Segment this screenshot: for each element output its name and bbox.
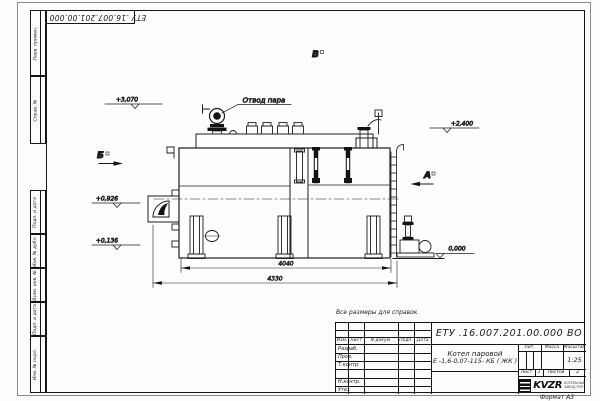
view-label-v: В xyxy=(312,50,324,60)
lit-label: Лит. xyxy=(518,344,541,351)
lifting-lug xyxy=(167,147,174,158)
elevation-0000: 0,000 xyxy=(436,246,474,259)
elevation-0136: +0,136 xyxy=(92,238,140,250)
boiler-body xyxy=(179,134,390,258)
col-ndoc: N докум. xyxy=(364,337,398,344)
format-label: Формат А3 xyxy=(497,394,600,401)
elevation-value: +0,926 xyxy=(96,196,118,203)
kvzr-logo-subtitle: КОТЕЛЬНЫЙ ЗАВОД РЭП xyxy=(564,381,585,389)
steam-outlet-callout: Отвод пара xyxy=(222,97,291,114)
dimension-4040: 4040 xyxy=(181,259,391,273)
product-name: Котел паровой Е -1,6-0,07-115- КБ ( ЖК ) xyxy=(432,344,518,371)
col-podp: Подп. xyxy=(398,337,414,344)
top-hatches xyxy=(247,123,304,134)
view-label-b: Б xyxy=(97,151,123,166)
manhole xyxy=(204,231,220,242)
kvzr-logo: KVZR КОТЕЛЬНЫЙ ЗАВОД РЭП xyxy=(519,377,585,393)
sheet-value: 1 xyxy=(535,369,543,376)
reference-note: Все размеры для справок xyxy=(336,309,476,316)
product-line1: Котел паровой xyxy=(448,350,503,358)
elevation-value: +0,136 xyxy=(96,238,118,245)
elevation-value: 0,000 xyxy=(448,246,465,253)
row-prov: Пров. xyxy=(336,353,366,361)
scale-label: Масштаб xyxy=(563,344,586,351)
sheets-value: 2 xyxy=(569,369,586,376)
elevation-value: +2,400 xyxy=(451,121,473,128)
doc-number: ЕТУ .16.007.201.00.000 ВО xyxy=(432,323,586,344)
sheets-label: Листов xyxy=(543,369,569,376)
row-tkontr: Т.контр. xyxy=(336,361,366,369)
mass-label: Масса xyxy=(541,344,563,351)
burner xyxy=(148,190,179,247)
row-nkontr: Н.контр. xyxy=(336,378,366,386)
flame-icon xyxy=(153,201,169,217)
col-izm: Изм. xyxy=(336,337,348,344)
sheet-label: Лист xyxy=(518,369,535,376)
feed-pump xyxy=(393,216,444,259)
title-block: ЕТУ .16.007.201.00.000 ВО Изм. Лист N до… xyxy=(335,322,585,393)
safety-valve xyxy=(358,110,383,148)
row-razrab: Разраб. xyxy=(336,344,366,353)
col-list: Лист xyxy=(348,337,364,344)
elevation-value: +3,070 xyxy=(116,97,138,104)
col-data: Дата xyxy=(414,337,431,344)
kvzr-logo-icon xyxy=(519,379,531,392)
elevation-2400: +2,400 xyxy=(430,121,479,133)
level-gauges xyxy=(295,147,353,183)
dome-fitting xyxy=(230,131,237,134)
scale-value: 1:25 xyxy=(563,351,586,369)
support-legs xyxy=(188,216,382,259)
view-label-a: А xyxy=(411,171,436,186)
elevation-0926: +0,926 xyxy=(92,196,140,208)
svg-text:В: В xyxy=(312,50,319,60)
dim-inner-value: 4040 xyxy=(278,261,293,268)
svg-text:Б: Б xyxy=(97,151,104,161)
svg-text:А: А xyxy=(423,171,431,181)
steam-valve xyxy=(203,105,227,134)
row-utv: Утв. xyxy=(336,386,366,394)
dim-outer-value: 4330 xyxy=(267,276,282,283)
product-line2: Е -1,6-0,07-115- КБ ( ЖК ) xyxy=(433,358,517,365)
kvzr-logo-text: KVZR xyxy=(533,380,562,391)
elevation-3070: +3,070 xyxy=(105,97,162,109)
steam-outlet-label: Отвод пара xyxy=(243,97,286,105)
